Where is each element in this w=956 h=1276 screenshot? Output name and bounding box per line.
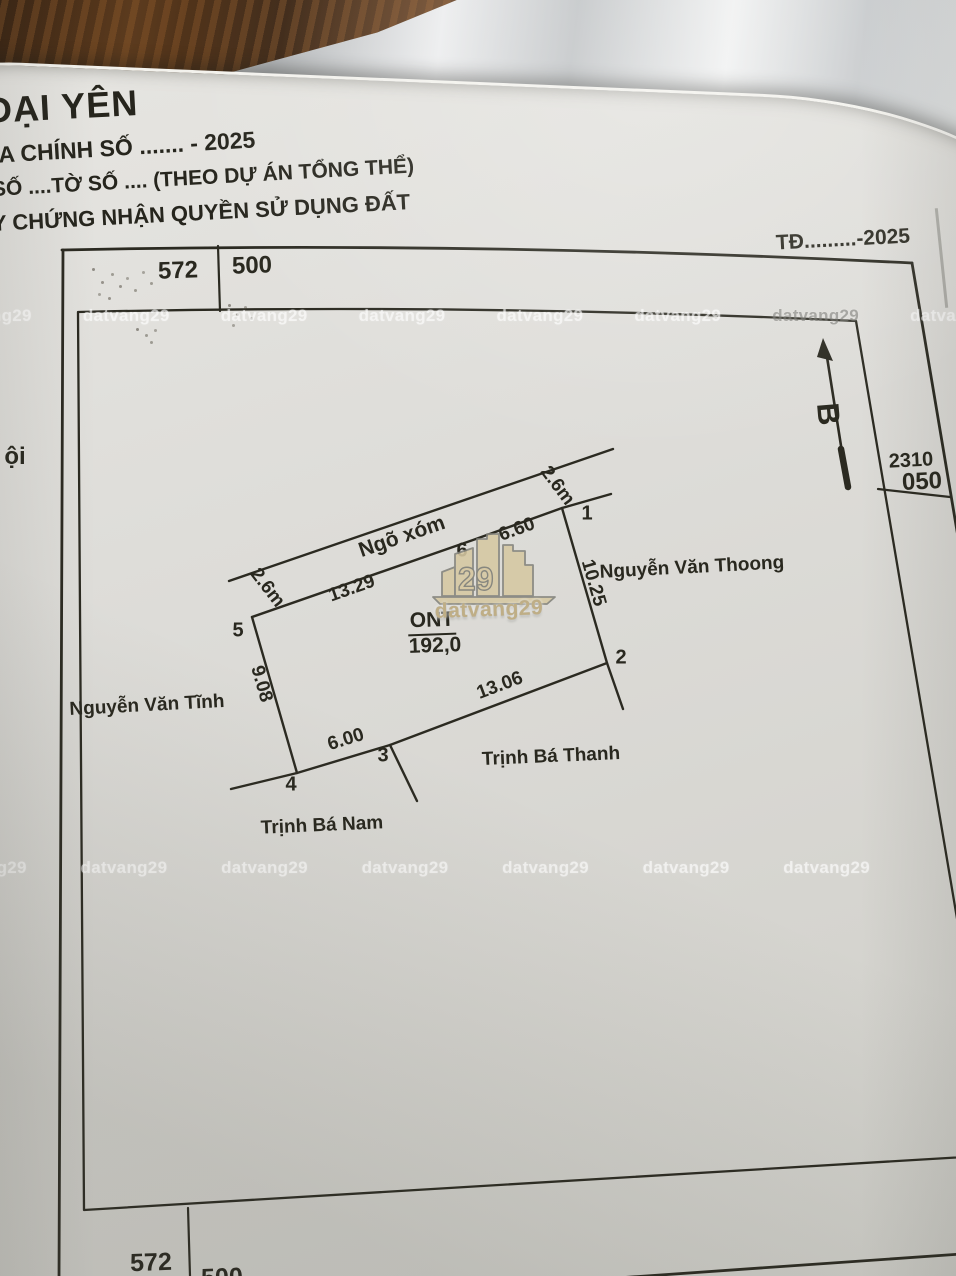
watermark-text: datvang29	[221, 306, 308, 326]
vertex-label-4: 4	[285, 774, 296, 797]
edge-fragment-label: ội	[4, 443, 25, 471]
vertex-label-3: 3	[377, 745, 388, 768]
watermark-text: datvang29	[0, 858, 27, 878]
grid-tick-top	[218, 246, 220, 311]
parcel-right-edge	[562, 508, 623, 709]
logo-name: datvang29	[434, 596, 543, 624]
grid-tick-bottom	[188, 1208, 190, 1276]
watermark-text: datvang29	[362, 858, 449, 878]
north-label: B	[809, 401, 847, 426]
pencil-marks	[92, 268, 95, 271]
watermark-text: datvang29	[772, 306, 859, 326]
grid-ref-right-lower: 050	[901, 467, 942, 497]
grid-ref-bottom-right: 500	[201, 1263, 244, 1276]
watermark-text: datvang29	[502, 858, 589, 878]
watermark-text: datvang29	[81, 858, 168, 878]
vertex-label-1: 1	[581, 503, 592, 526]
grid-ref-top-left: 572	[158, 256, 199, 285]
watermark-text: datvang29	[221, 858, 308, 878]
watermark-text: datvang29	[783, 858, 870, 878]
vertex-label-2: 2	[615, 647, 626, 670]
watermark-text: datvang29	[634, 306, 721, 326]
area-label: 192,0	[408, 633, 461, 659]
outer-frame-bottom	[560, 1252, 956, 1276]
north-arrow-head	[817, 338, 833, 361]
grid-ref-bottom-left: 572	[130, 1248, 173, 1276]
pencil-marks	[136, 328, 139, 331]
watermark-text: datvang29	[83, 306, 170, 326]
watermark-text: datvang29	[643, 858, 730, 878]
vertex-label-5: 5	[232, 620, 243, 643]
boundary-extension-v3	[390, 745, 417, 801]
cadastral-extract-photo: ĐẠI YÊN ỊA CHÍNH SỐ ....... - 2025 SỐ ..…	[0, 0, 956, 1276]
watermark-row: datvang29 datvang29 datvang29 datvang29 …	[0, 306, 956, 326]
watermark-text: datvang29	[497, 306, 584, 326]
watermark-text: datvang29	[0, 306, 32, 326]
watermark-text: datvang29	[910, 306, 956, 326]
logo-building	[503, 545, 533, 596]
logo-number: 29	[458, 561, 494, 597]
parcel-bottom-edge	[231, 663, 607, 789]
grid-ref-top-right: 500	[232, 251, 273, 280]
header-line-commune: ĐẠI YÊN	[0, 82, 139, 132]
logo-building	[442, 567, 455, 596]
north-arrow-tail	[841, 449, 848, 487]
watermark-row: datvang29 datvang29 datvang29 datvang29 …	[0, 858, 870, 878]
watermark-text: datvang29	[359, 306, 446, 326]
outer-frame-left	[59, 250, 63, 1276]
